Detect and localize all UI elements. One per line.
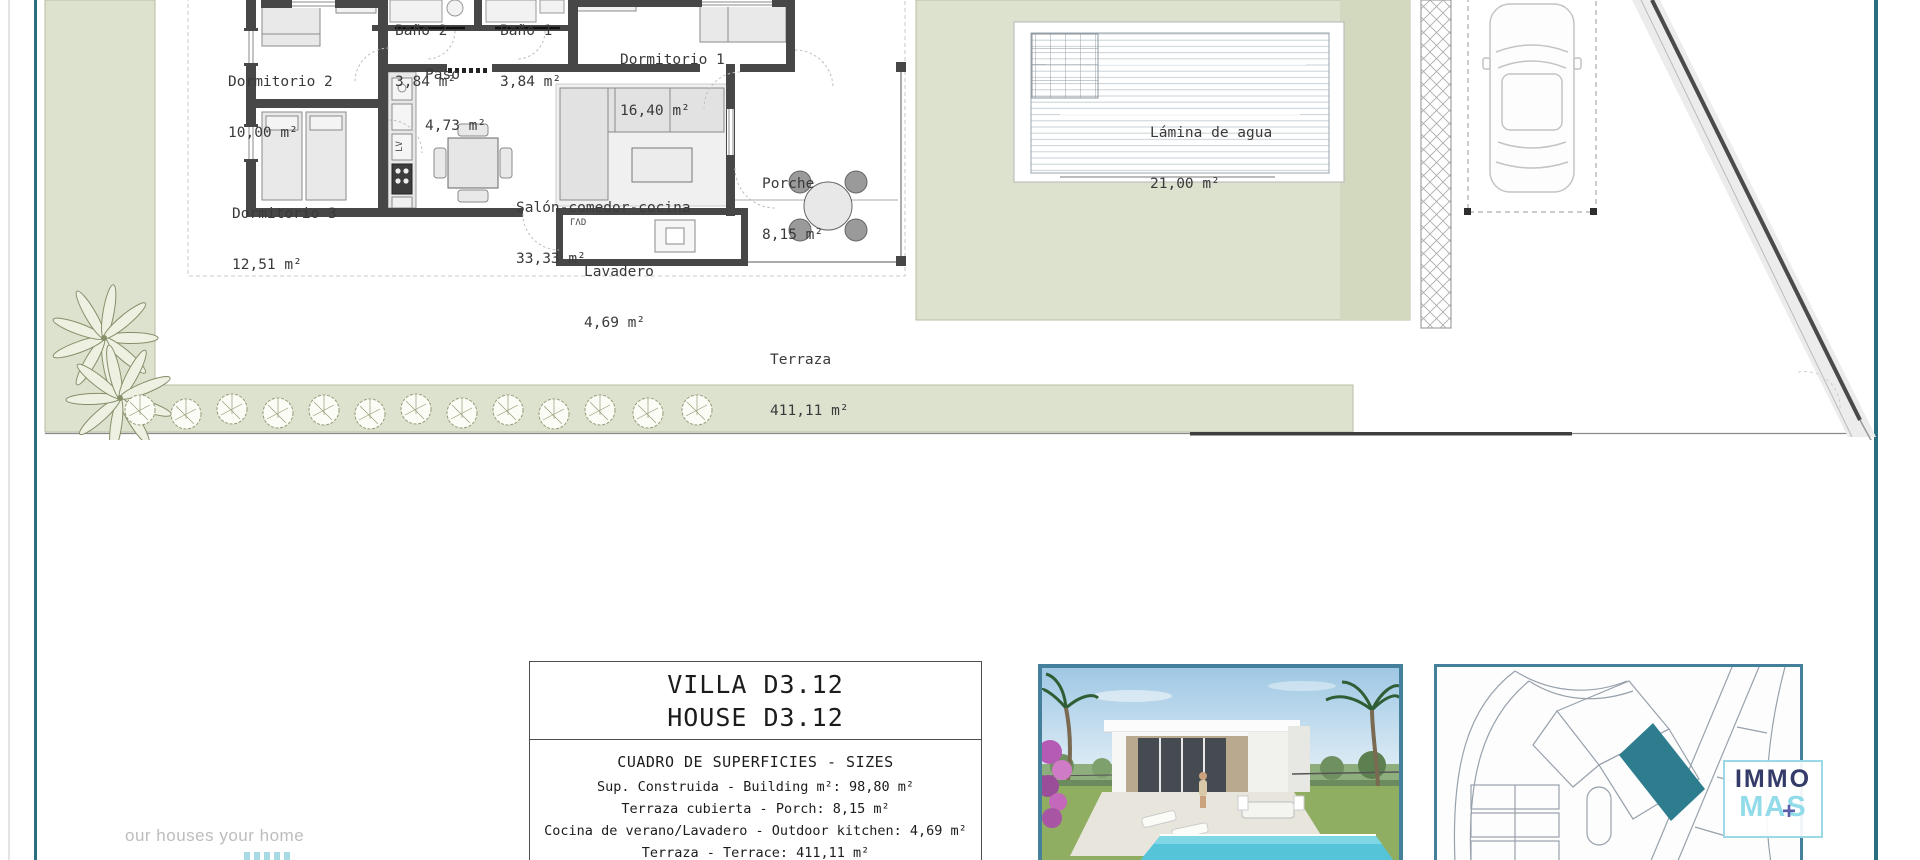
house-title: HOUSE D3.12 — [530, 701, 981, 734]
villa-render-photo — [1038, 664, 1403, 860]
villa-title: VILLA D3.12 — [530, 668, 981, 701]
highlighted-parcel — [1619, 723, 1705, 821]
villa-render-scene — [1042, 668, 1399, 860]
logo-fragment — [244, 852, 292, 860]
sizes-row-outdoor-kitchen: Cocina de verano/Lavadero - Outdoor kitc… — [530, 820, 981, 842]
plot-boundary-dark-segment — [1190, 432, 1572, 436]
car-top-view — [1483, 4, 1581, 192]
sizes-row-porch: Terraza cubierta - Porch: 8,15 m² — [530, 798, 981, 820]
room-label-paso: Paso 4,73 m² — [425, 33, 486, 169]
room-label-dormitorio3: Dormitorio 3 12,51 m² — [232, 172, 337, 308]
sizes-table-title: CUADRO DE SUPERFICIES - SIZES — [530, 752, 981, 773]
brand-slogan: our houses your home — [125, 826, 304, 846]
dishwasher-mark: LV — [396, 141, 405, 152]
room-label-dormitorio1: Dormitorio 1 16,40 m² — [620, 18, 725, 154]
logo-text-mas: MAS — [1725, 792, 1821, 822]
diagonal-boundary — [1632, 0, 1876, 440]
room-label-bano1: Baño 1 3,84 m² — [500, 0, 561, 125]
sizes-table: CUADRO DE SUPERFICIES - SIZES Sup. Const… — [530, 740, 981, 860]
lavadero-equipment-mark: ΓΛD — [570, 219, 586, 228]
title-block-header: VILLA D3.12 HOUSE D3.12 — [530, 662, 981, 740]
garden-green-shade — [1340, 0, 1410, 320]
logo-text-immo: IMMO — [1725, 766, 1821, 792]
hedge-strip — [1421, 0, 1451, 328]
plan-sheet-page: Baño 2 3,84 m² Baño 1 3,84 m² Dormitorio… — [0, 0, 1920, 860]
sizes-row-terrace: Terraza - Terrace: 411,11 m² — [530, 842, 981, 860]
site-plan-area: Baño 2 3,84 m² Baño 1 3,84 m² Dormitorio… — [0, 0, 1920, 440]
room-label-dormitorio2: Dormitorio 2 10,00 m² — [228, 40, 333, 176]
logo-plus-icon: + — [1782, 798, 1796, 826]
terrace-label: Terraza 411,11 m² — [770, 318, 849, 454]
pool-label: Lámina de agua 21,00 m² — [1150, 91, 1272, 227]
title-block: VILLA D3.12 HOUSE D3.12 CUADRO DE SUPERF… — [529, 661, 982, 860]
room-label-lavadero: Lavadero 4,69 m² — [584, 230, 654, 366]
immomas-logo: IMMO MAS + — [1723, 760, 1823, 838]
sizes-row-building: Sup. Construida - Building m²: 98,80 m² — [530, 776, 981, 798]
room-label-porche: Porche 8,15 m² — [762, 142, 823, 278]
